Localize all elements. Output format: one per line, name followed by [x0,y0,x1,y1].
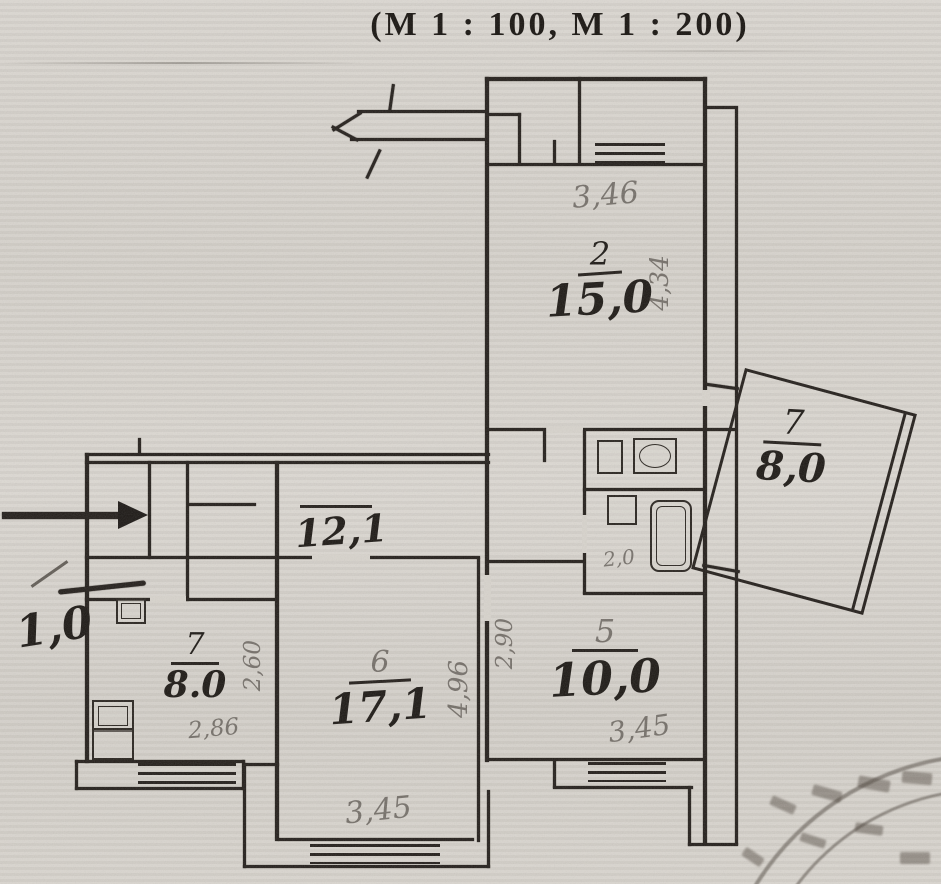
wall-bottomright-step [688,786,691,846]
window-mullion [553,140,556,165]
loggia-left-area: 1,0 [12,596,96,658]
wall-bath-bottom [583,592,703,595]
radiator-hatch-room2 [595,143,665,164]
room2-number: 2 [590,238,610,270]
wall-bath-mid [583,488,703,491]
radiator-hatch-room6 [310,844,440,864]
room6-area: 17,1 [327,681,432,732]
dim-kitchen-width: 2,86 [187,714,240,744]
wall-bottomright [688,843,738,846]
stamp-smudge [769,795,797,815]
wall-right-outer-top [707,106,735,109]
balcony-right-area: 8,0 [755,445,827,491]
wall-corridor-top-inner [85,461,490,464]
kitchen-label: 7 8.0 [160,630,230,705]
entrance-arrow-head [118,501,148,529]
dim-room5-depth: 2,90 [492,618,518,669]
scale-title: (М 1 : 100, М 1 : 200) [320,6,800,44]
room5-sill-left [553,760,556,788]
balcony-connector-top [705,383,739,391]
wc-sink [633,438,677,474]
dim-room6-depth: 4,96 [444,660,474,718]
wall-closet-2 [186,461,189,601]
balcony-right-label: 7 8,0 [755,404,829,491]
stamp-smudge [741,847,765,868]
door-gap-room2 [543,426,583,433]
entry-door-top [487,113,521,116]
kitchen-stove-inner [121,603,141,619]
scan-streak [560,50,860,52]
radiator-hatch-kitchen [138,763,236,785]
bathtub-inner [656,506,686,566]
pen-scribble [31,560,69,588]
balcony-right-number: 7 [782,405,805,440]
wall-room2-bottom [487,428,735,431]
wall-right-main [703,77,707,845]
scan-streak [0,62,365,64]
wall-closet-1 [148,461,151,559]
kitchen-sill-left [75,760,78,790]
kitchen-sink-inner [98,706,128,726]
room6-number: 6 [370,648,389,678]
door-gap-bath [582,515,587,553]
balcony-inner-line [851,412,907,612]
dim-room6-width: 3,45 [343,790,413,832]
wall-bath-left [583,430,586,594]
canopy-top-line [357,110,485,113]
balcony6-top-connector [243,763,279,766]
wall-room6-top [278,556,480,559]
wall-closet-bottom [85,556,278,559]
balcony-right-outline: 7 8,0 [691,368,917,615]
wall-room2-top [485,77,707,81]
stamp-smudge [811,784,843,803]
dim-room2-width: 3,46 [571,175,641,216]
balcony6-bottom [243,865,490,868]
balcony-door-gap [702,390,710,406]
canopy-slash [365,149,381,179]
door-gap-room5 [484,575,491,621]
wall-left-column [275,461,279,841]
kitchen-sill-bottom [75,787,245,790]
room2-label: 2 15,0 [560,238,640,323]
room6-label: 6 17,1 [335,648,425,729]
kitchen-area: 8.0 [164,667,227,705]
wall-stub-corridor [543,428,546,462]
stamp-smudge [902,771,933,786]
entry-door-side [518,113,521,165]
dim-room5-width: 3,45 [606,708,672,749]
canopy-hook [388,84,395,112]
room5-sill-outer [553,786,693,789]
wall-room5-bottom [489,758,705,761]
hall-area: 12,1 [294,505,389,556]
dim-bath-width: 2,0 [602,544,636,571]
canopy-bottom-line [350,138,486,141]
radiator-hatch-room5 [588,762,666,782]
wall-corridor-top-outer [85,453,490,456]
kitchen-stove [116,598,146,624]
wall-room2-divider [578,77,581,165]
room2-area: 15,0 [545,274,654,326]
room5-area: 10,0 [548,651,662,705]
room5-number: 5 [595,615,615,647]
kitchen-number: 7 [185,630,204,660]
door-gap-kitchen [150,596,186,603]
scanned-floor-plan: (М 1 : 100, М 1 : 200) 3,46 2 15,0 4,34 … [0,0,941,884]
canopy-tip-lower [331,125,359,142]
bathtub [650,500,692,572]
entrance-arrow-shaft [2,512,120,519]
wall-room6-right [477,558,480,842]
wall-room6-bottom [278,838,474,841]
pen-stroke [58,580,146,594]
room5-label: 5 10,0 [555,615,655,702]
wc-toilet [597,440,623,474]
balcony6-right [487,790,490,868]
bath-basin [607,495,637,525]
wall-tick-above-corridor [138,438,141,454]
wall-room5-topleft [489,560,585,563]
dim-room2-depth: 4,34 [645,255,674,311]
balcony6-left [243,763,246,868]
wall-room2-left [485,77,489,432]
stamp-smudge [900,852,930,864]
door-gap-room6 [312,554,370,561]
dim-kitchen-depth: 2,60 [240,640,266,691]
wall-closet-shelf [188,503,256,506]
kitchen-counter [92,728,134,760]
wc-sink-bowl [639,444,671,468]
